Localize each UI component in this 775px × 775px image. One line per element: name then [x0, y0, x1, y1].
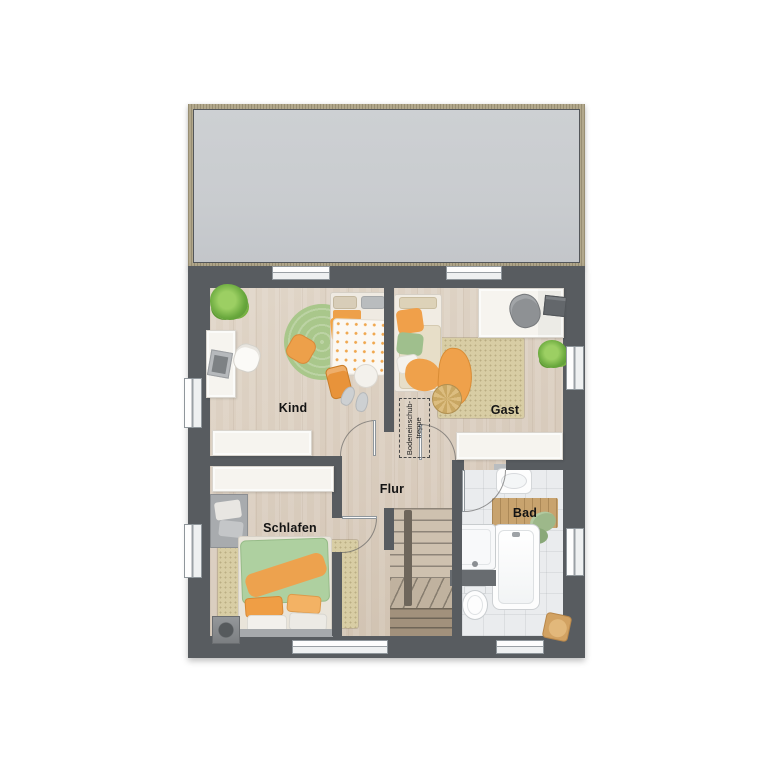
gast-woven-pouf — [432, 384, 462, 414]
room-label-kind: Kind — [279, 401, 308, 415]
schlafen-wardrobe — [212, 466, 334, 492]
gast-pillow-orange — [395, 307, 424, 334]
kind-laptop — [207, 349, 233, 378]
schlafen-bed — [238, 536, 332, 636]
bad-bathtub — [492, 524, 540, 610]
window-kind-left — [184, 378, 202, 428]
stair-treads-upper — [390, 508, 452, 578]
schlafen-speaker — [212, 616, 240, 644]
bathtub-faucet — [512, 532, 520, 537]
stair-treads-lower — [390, 608, 452, 636]
window-schlafen-bottom — [292, 640, 388, 654]
staircase — [390, 508, 452, 636]
roof-surface — [193, 109, 580, 263]
kind-pouf — [354, 364, 378, 388]
wall-bad-top-right — [506, 460, 563, 470]
gast-printer — [543, 295, 567, 317]
window-schlafen-left — [184, 524, 202, 578]
stair-winder-steps — [390, 578, 452, 608]
gast-wardrobe — [456, 432, 563, 460]
wall-stairs-bad — [452, 470, 462, 636]
room-label-schlafen: Schlafen — [263, 521, 317, 535]
kind-bed — [330, 292, 388, 376]
room-label-gast: Gast — [491, 403, 520, 417]
window-kind-top — [272, 266, 330, 280]
attic-hatch-outline: Bodeneinschub- treppe — [399, 398, 430, 458]
wall-kind-gast-divider — [384, 288, 394, 432]
window-bad-bottom — [496, 640, 544, 654]
shower-faucet — [472, 561, 478, 567]
wall-schlafen-flur-lower — [332, 552, 342, 636]
kind-pillow-beige — [333, 296, 357, 309]
attic-hatch-label: Bodeneinschub- treppe — [406, 401, 424, 455]
window-gast-top — [446, 266, 502, 280]
schlafen-footboard — [239, 629, 333, 637]
window-gast-right — [566, 346, 584, 390]
kind-desk — [206, 330, 236, 398]
kind-wardrobe — [212, 430, 312, 456]
stair-railing — [404, 510, 412, 606]
wall-stairs-stub — [384, 508, 394, 550]
attic-hatch-label-line2: treppe — [415, 401, 424, 455]
floorplan-canvas: Bodeneinschub- treppe Kind Gast Flur Sch… — [0, 0, 775, 775]
kind-plant — [210, 284, 248, 320]
room-label-flur: Flur — [380, 482, 404, 496]
gast-bed — [394, 294, 442, 392]
door-leaf-schlafen — [342, 516, 377, 519]
bad-toilet — [460, 586, 490, 622]
wall-kind-flur — [210, 456, 340, 466]
kind-pillow-gray — [361, 296, 385, 309]
gast-plant — [538, 340, 568, 368]
door-leaf-kind — [373, 420, 376, 456]
schlafen-clothes-white — [214, 499, 242, 520]
window-bad-right — [566, 528, 584, 576]
bad-stool — [542, 612, 573, 643]
door-leaf-bad — [462, 470, 465, 512]
flat-roof-area — [188, 104, 585, 268]
room-label-bad: Bad — [513, 506, 537, 520]
gast-pillow-green — [396, 332, 424, 357]
wall-bad-top-left — [452, 460, 464, 470]
